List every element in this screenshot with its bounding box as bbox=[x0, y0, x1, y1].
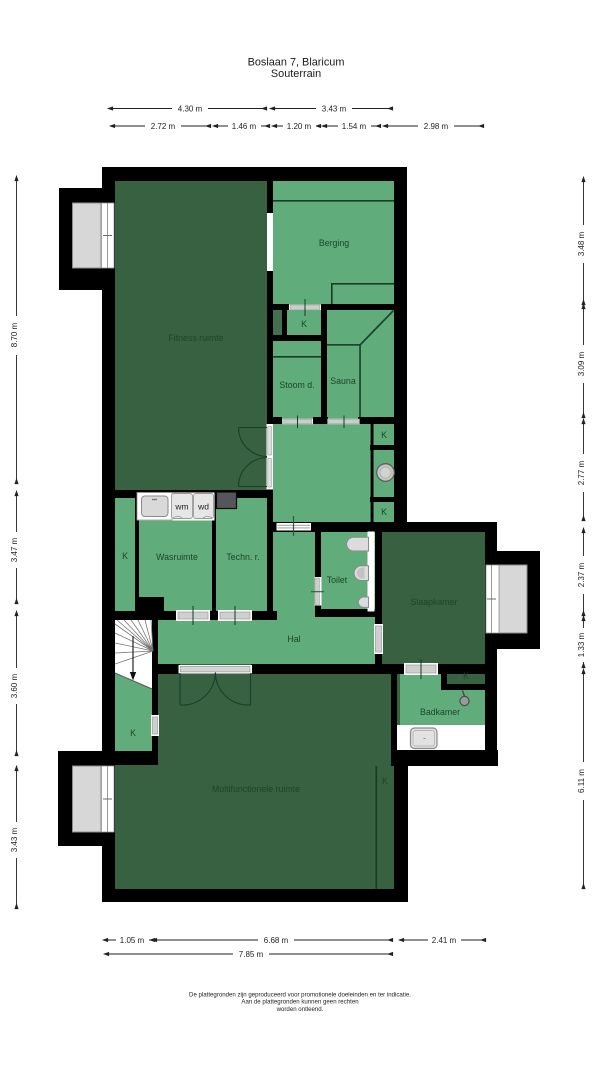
svg-text:8.70 m: 8.70 m bbox=[10, 322, 19, 347]
svg-text:4.30 m: 4.30 m bbox=[178, 105, 203, 114]
svg-text:wd: wd bbox=[197, 502, 209, 512]
svg-text:Sauna: Sauna bbox=[330, 376, 356, 386]
svg-text:Aan de plattegronden kunnen ge: Aan de plattegronden kunnen geen rechten bbox=[241, 999, 358, 1006]
svg-text:3.60 m: 3.60 m bbox=[10, 673, 19, 698]
svg-text:2.72 m: 2.72 m bbox=[151, 122, 176, 131]
svg-text:Fitness ruimte: Fitness ruimte bbox=[168, 333, 223, 343]
svg-text:K: K bbox=[381, 430, 387, 440]
svg-text:K: K bbox=[381, 507, 387, 517]
svg-text:Multifunctionele ruimte: Multifunctionele ruimte bbox=[212, 784, 300, 794]
svg-text:6.68 m: 6.68 m bbox=[264, 936, 289, 945]
svg-text:3.43 m: 3.43 m bbox=[322, 105, 347, 114]
svg-text:Toilet: Toilet bbox=[327, 575, 348, 585]
svg-text:Stoom d.: Stoom d. bbox=[279, 380, 314, 390]
svg-text:3.09 m: 3.09 m bbox=[577, 351, 586, 376]
svg-text:wm: wm bbox=[174, 502, 188, 512]
svg-text:De plattegronden zijn geproduc: De plattegronden zijn geproduceerd voor … bbox=[189, 992, 411, 999]
svg-text:Slaapkamer: Slaapkamer bbox=[411, 597, 458, 607]
svg-text:Badkamer: Badkamer bbox=[420, 707, 460, 717]
svg-text:3.43 m: 3.43 m bbox=[10, 827, 19, 852]
svg-text:Hal: Hal bbox=[287, 634, 300, 644]
svg-text:2.98 m: 2.98 m bbox=[424, 122, 449, 131]
svg-text:2.37 m: 2.37 m bbox=[577, 562, 586, 587]
svg-text:Boslaan 7, Blaricum: Boslaan 7, Blaricum bbox=[248, 57, 345, 69]
svg-text:K: K bbox=[301, 319, 307, 329]
svg-text:worden ontleend.: worden ontleend. bbox=[276, 1006, 324, 1013]
svg-text:1.20 m: 1.20 m bbox=[287, 122, 312, 131]
svg-text:3.47 m: 3.47 m bbox=[10, 537, 19, 562]
svg-text:Wasruimte: Wasruimte bbox=[156, 552, 198, 562]
svg-text:2.41 m: 2.41 m bbox=[432, 936, 457, 945]
svg-text:2.77 m: 2.77 m bbox=[577, 460, 586, 485]
svg-text:1.05 m: 1.05 m bbox=[120, 936, 145, 945]
svg-text:Berging: Berging bbox=[319, 238, 349, 248]
svg-text:Techn. r.: Techn. r. bbox=[226, 552, 259, 562]
svg-text:K: K bbox=[463, 671, 469, 681]
svg-text:6.11 m: 6.11 m bbox=[577, 769, 586, 793]
svg-text:K: K bbox=[382, 776, 388, 786]
svg-text:7.85 m: 7.85 m bbox=[239, 950, 264, 959]
svg-text:1.33 m: 1.33 m bbox=[577, 632, 586, 657]
svg-text:1.54 m: 1.54 m bbox=[342, 122, 367, 131]
svg-text:K: K bbox=[130, 728, 136, 738]
svg-text:K: K bbox=[122, 551, 128, 561]
svg-text:3.48 m: 3.48 m bbox=[577, 231, 586, 256]
svg-text:Souterrain: Souterrain bbox=[271, 68, 321, 80]
svg-text:1.46 m: 1.46 m bbox=[232, 122, 257, 131]
